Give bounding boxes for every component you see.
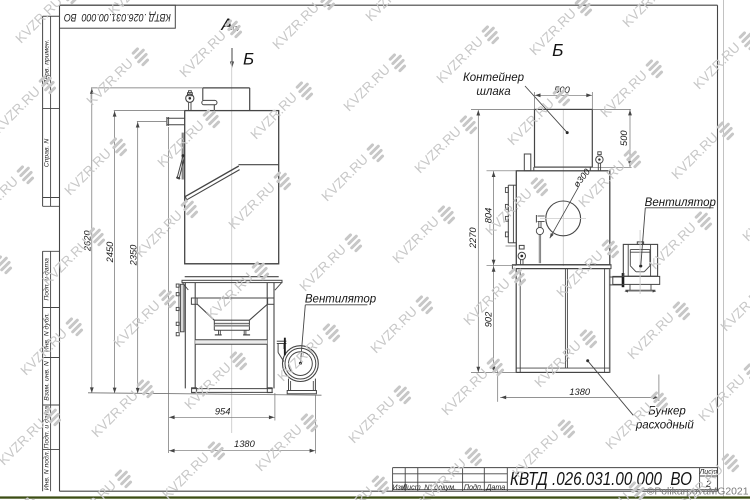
svg-text:Вентилятор: Вентилятор bbox=[645, 197, 717, 209]
svg-text:Дата: Дата bbox=[485, 482, 505, 491]
svg-text:Взам. инв. N: Взам. инв. N bbox=[43, 361, 50, 401]
svg-text:2450: 2450 bbox=[105, 241, 115, 264]
svg-text:1380: 1380 bbox=[569, 387, 591, 397]
svg-text:Инв. N подл.: Инв. N подл. bbox=[42, 450, 50, 490]
svg-text:Вентилятор: Вентилятор bbox=[305, 294, 377, 306]
svg-text:Лист: Лист bbox=[401, 482, 421, 491]
svg-text:2270: 2270 bbox=[468, 227, 478, 250]
svg-text:Подп.: Подп. bbox=[464, 482, 483, 491]
svg-text:Справ. N: Справ. N bbox=[43, 139, 50, 168]
svg-text:954: 954 bbox=[215, 407, 231, 417]
svg-text:шлака: шлака bbox=[476, 86, 510, 98]
svg-text:Бункер: Бункер bbox=[648, 405, 686, 417]
svg-text:500: 500 bbox=[619, 130, 629, 146]
svg-text:Б: Б bbox=[243, 50, 254, 69]
svg-text:Контейнер: Контейнер bbox=[463, 72, 525, 84]
svg-text:Б: Б bbox=[552, 40, 563, 60]
svg-text:1380: 1380 bbox=[234, 439, 256, 449]
